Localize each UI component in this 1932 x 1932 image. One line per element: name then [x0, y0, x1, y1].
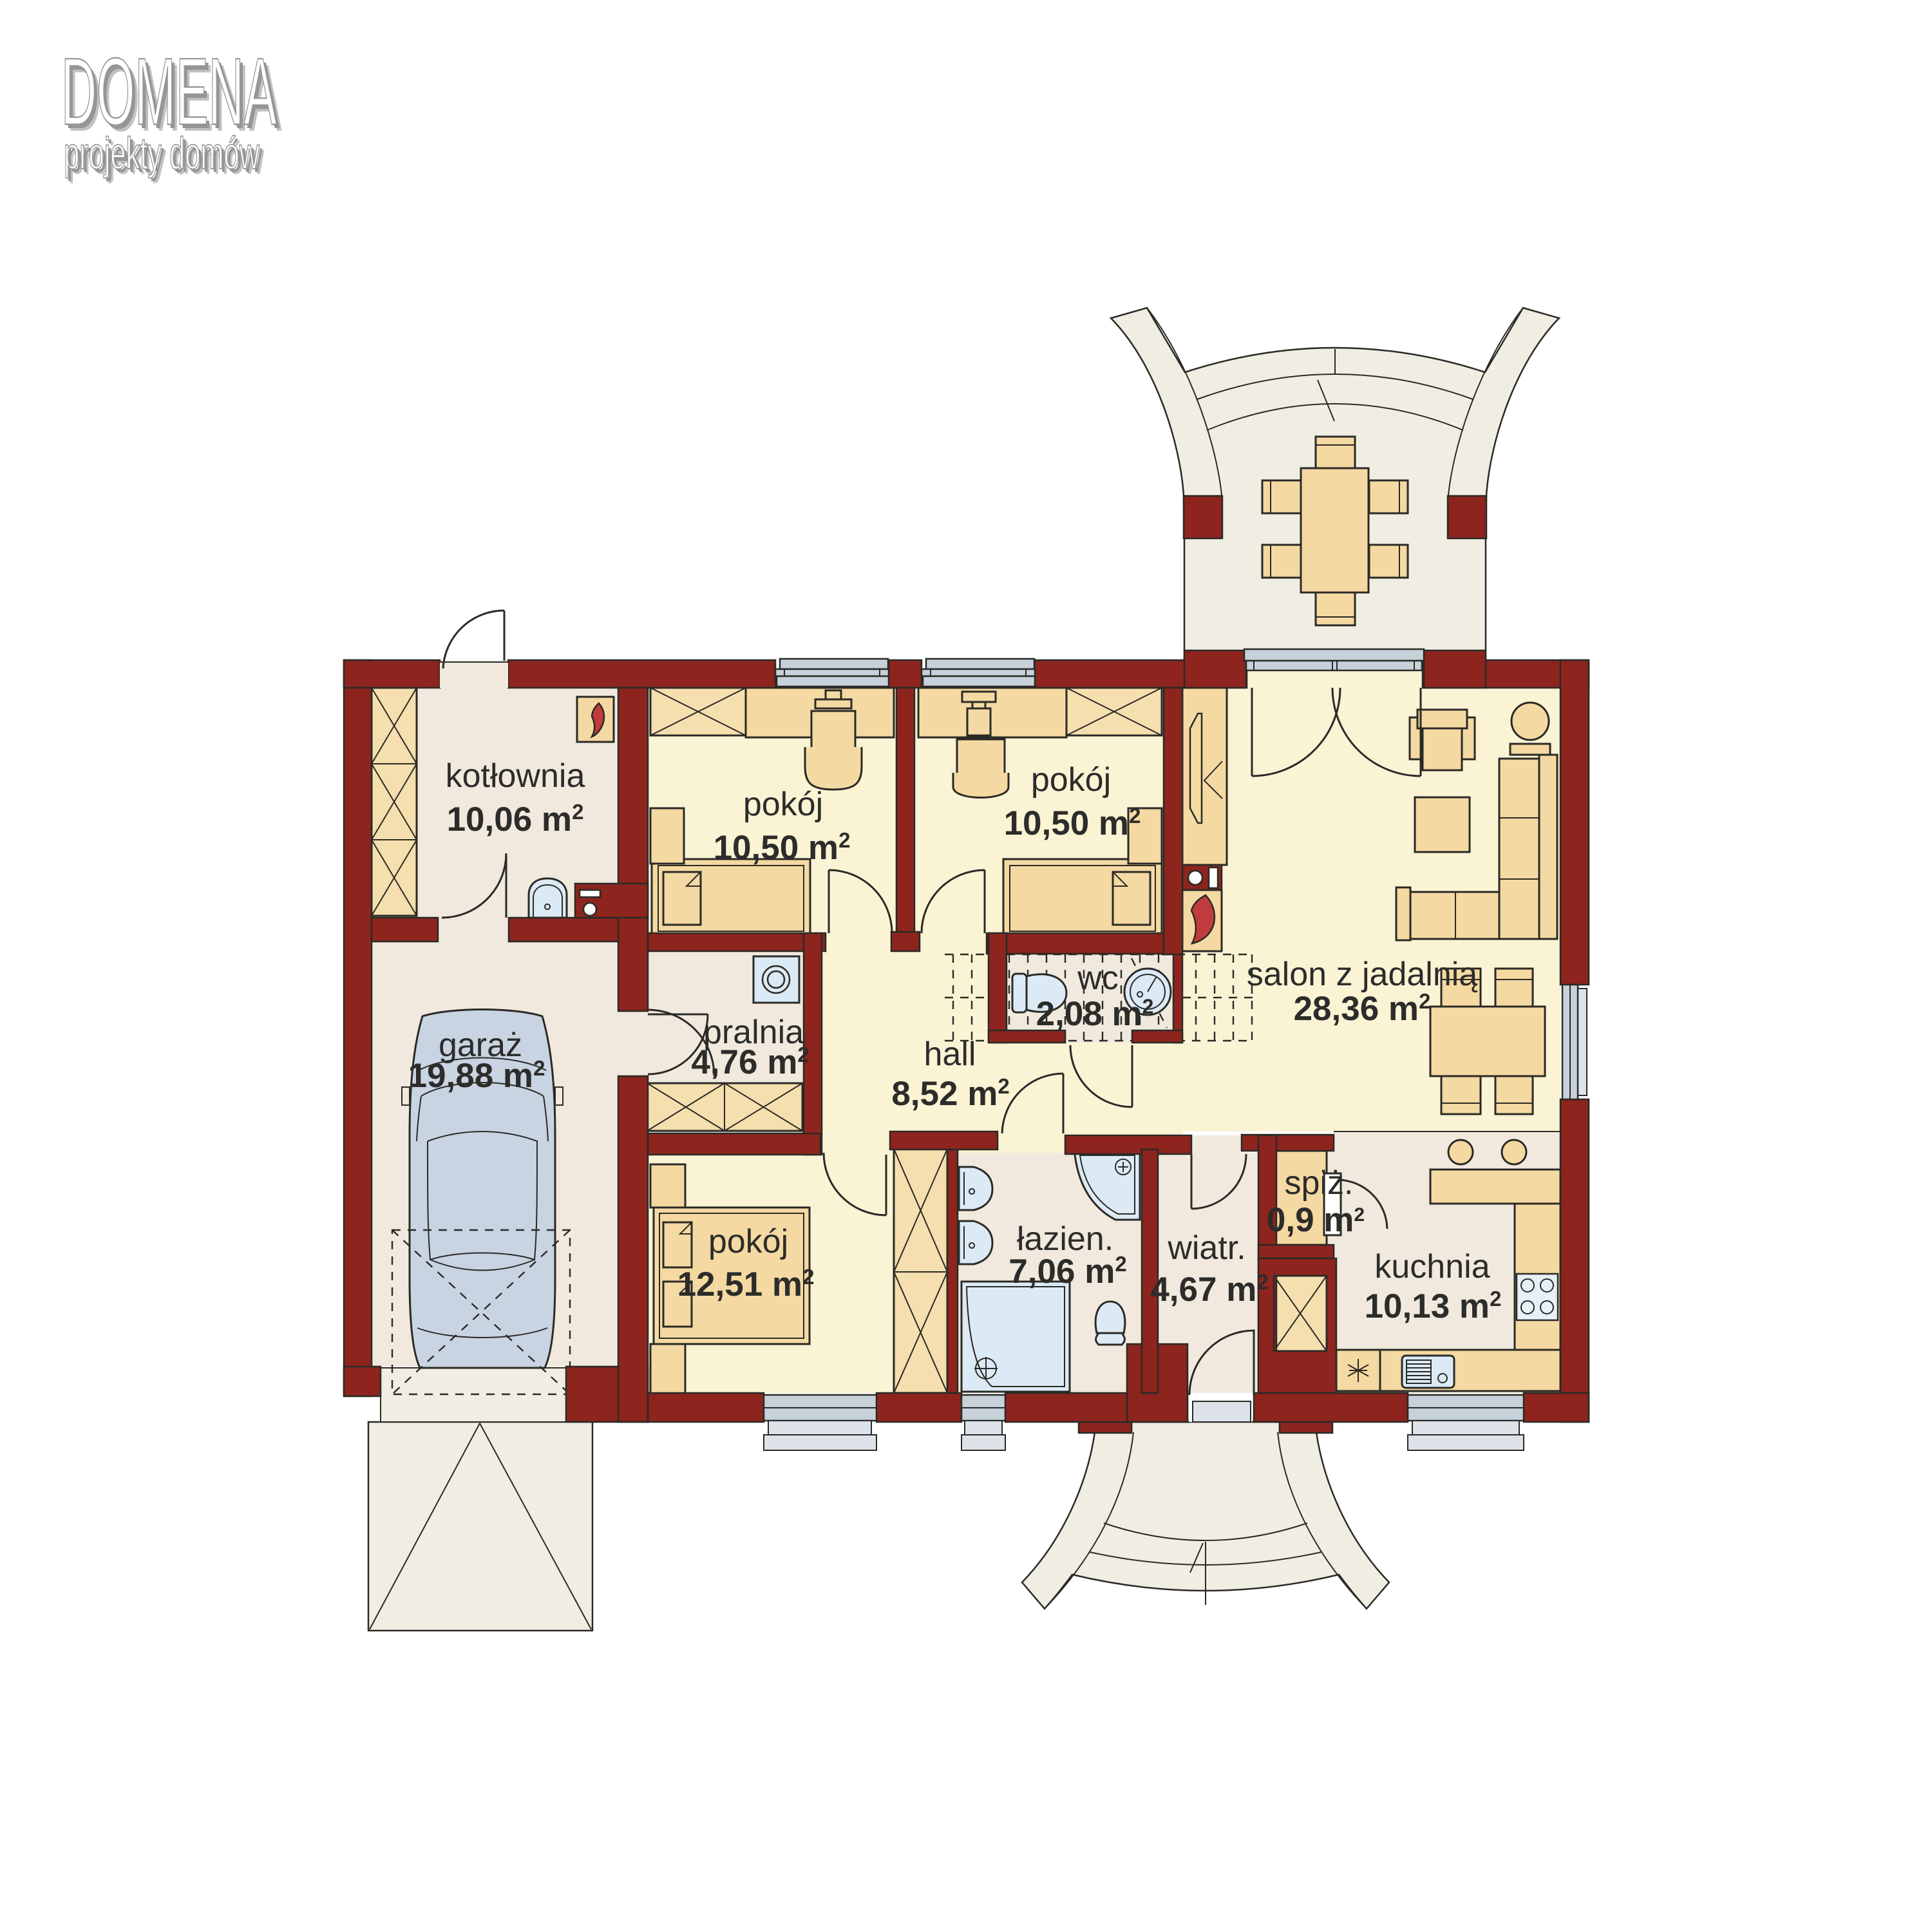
- svg-text:kotłownia: kotłownia: [446, 757, 585, 795]
- svg-text:10,06 m2: 10,06 m2: [447, 800, 584, 838]
- svg-text:spiż.: spiż.: [1285, 1164, 1354, 1202]
- svg-text:10,50 m2: 10,50 m2: [714, 828, 851, 867]
- svg-text:12,51 m2: 12,51 m2: [677, 1265, 815, 1303]
- svg-text:projekty domów: projekty domów: [64, 128, 260, 178]
- svg-text:pokój: pokój: [1031, 761, 1111, 799]
- svg-text:8,52 m2: 8,52 m2: [891, 1074, 1009, 1113]
- svg-text:kuchnia: kuchnia: [1374, 1248, 1490, 1285]
- svg-text:wiatr.: wiatr.: [1167, 1229, 1245, 1267]
- svg-text:salon z jadalnią: salon z jadalnią: [1247, 956, 1478, 993]
- svg-text:0,9 m2: 0,9 m2: [1267, 1201, 1365, 1239]
- svg-text:10,50 m2: 10,50 m2: [1004, 804, 1141, 842]
- svg-text:2,08 m2: 2,08 m2: [1036, 995, 1154, 1033]
- svg-text:10,13 m2: 10,13 m2: [1365, 1287, 1502, 1325]
- svg-text:28,36 m2: 28,36 m2: [1294, 989, 1431, 1028]
- svg-text:hall: hall: [924, 1036, 976, 1073]
- svg-text:pokój: pokój: [708, 1223, 788, 1260]
- svg-text:4,67 m2: 4,67 m2: [1150, 1270, 1268, 1309]
- svg-text:pokój: pokój: [743, 786, 823, 823]
- svg-text:19,88 m2: 19,88 m2: [408, 1056, 545, 1095]
- svg-text:4,76 m2: 4,76 m2: [691, 1043, 809, 1081]
- svg-text:wc: wc: [1077, 960, 1119, 997]
- svg-text:7,06 m2: 7,06 m2: [1009, 1252, 1126, 1291]
